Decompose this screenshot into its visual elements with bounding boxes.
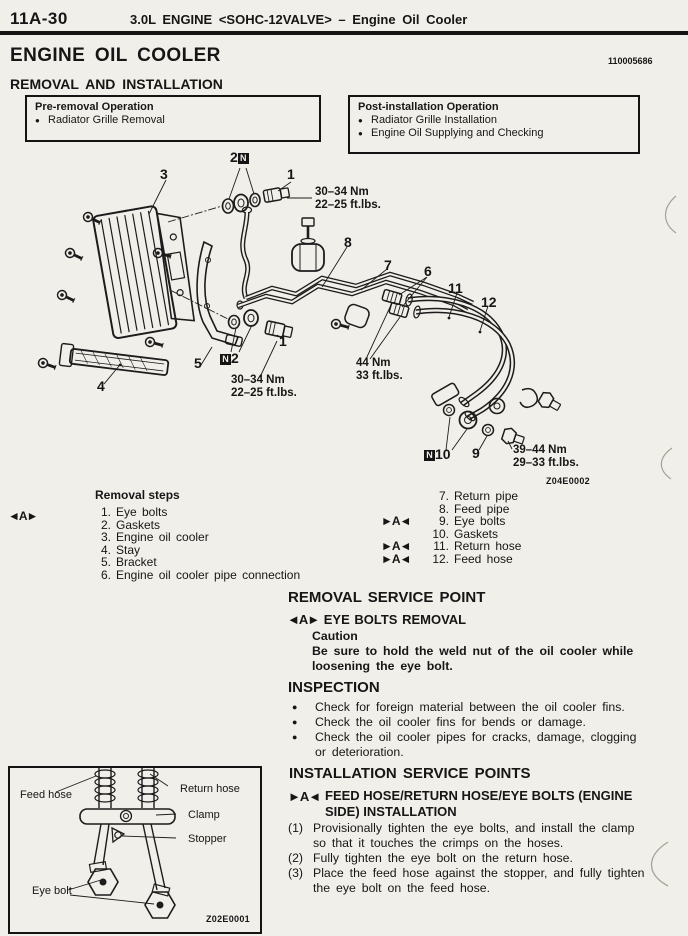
bullet-icon: ● bbox=[358, 114, 371, 127]
callout-6: 6 bbox=[424, 263, 432, 279]
inset-hoses bbox=[95, 768, 158, 808]
removal-service-point-heading: REMOVAL SERVICE POINT bbox=[288, 589, 485, 606]
post-installation-box: Post-installation Operation ● Radiator G… bbox=[348, 95, 640, 154]
hose-clamp-drawing bbox=[343, 303, 371, 329]
pre-removal-title: Pre-removal Operation bbox=[35, 100, 311, 114]
torque-top-ft: 22–25 ft.lbs. bbox=[315, 199, 381, 212]
step-line: the eye bolt on the feed hose. bbox=[313, 881, 645, 896]
torque-hose-nm: 44 Nm bbox=[356, 357, 403, 370]
torque-hose-ft: 33 ft.lbs. bbox=[356, 370, 403, 383]
inset-label-eye-bolt: Eye bolt bbox=[32, 885, 72, 897]
removal-steps-left: 1.Eye bolts 2.Gaskets 3.Engine oil coole… bbox=[97, 506, 300, 582]
inspection-text: Check the oil cooler fins for bends or d… bbox=[315, 715, 586, 730]
torque-mid-nm: 30–34 Nm bbox=[231, 374, 297, 387]
torque-top-nm: 30–34 Nm bbox=[315, 186, 381, 199]
caution-label: Caution bbox=[312, 629, 633, 644]
torque-top: 30–34 Nm 22–25 ft.lbs. bbox=[315, 186, 381, 212]
inspection-list: ● Check for foreign material between the… bbox=[292, 700, 684, 760]
callout-2n: 2N bbox=[230, 149, 249, 165]
pre-removal-box: Pre-removal Operation ● Radiator Grille … bbox=[25, 95, 321, 142]
step-line: Place the feed hose against the stopper,… bbox=[313, 866, 645, 881]
step-line: Fully tighten the eye bolt on the return… bbox=[313, 851, 573, 866]
installation-step: (2) Fully tighten the eye bolt on the re… bbox=[288, 851, 686, 866]
inspection-item: ● Check for foreign material between the… bbox=[292, 700, 684, 715]
callout-4: 4 bbox=[97, 378, 105, 394]
list-item: 3.Engine oil cooler bbox=[97, 531, 300, 544]
post-installation-item: ● Radiator Grille Installation bbox=[358, 114, 630, 127]
feed-return-pipes bbox=[237, 274, 473, 311]
pre-removal-item: ● Radiator Grille Removal bbox=[35, 114, 311, 127]
list-item: 7.Return pipe bbox=[381, 490, 521, 503]
callout-1-top: 1 bbox=[287, 166, 295, 182]
caution-line: Be sure to hold the weld nut of the oil … bbox=[312, 644, 633, 659]
page-title: ENGINE OIL COOLER bbox=[10, 45, 221, 67]
callout-n2: N2 bbox=[220, 350, 239, 366]
callout-8: 8 bbox=[344, 234, 352, 250]
callout-n2-number: 2 bbox=[231, 350, 239, 366]
eye-bolt-top bbox=[263, 186, 290, 202]
inset-label-clamp: Clamp bbox=[188, 809, 220, 821]
callout-12: 12 bbox=[481, 294, 497, 310]
gaskets-mid bbox=[229, 310, 259, 329]
sub-heading-line: SIDE) INSTALLATION bbox=[325, 804, 632, 820]
bullet-icon: ● bbox=[292, 730, 315, 760]
non-reusable-badge: N bbox=[424, 450, 435, 461]
inspection-item: ● Check the oil cooler fins for bends or… bbox=[292, 715, 684, 730]
callout-n10-number: 10 bbox=[435, 446, 451, 462]
post-installation-item-text: Radiator Grille Installation bbox=[371, 114, 497, 127]
inset-clamp bbox=[80, 809, 175, 824]
list-item: ►A◄9.Eye bolts bbox=[381, 515, 521, 528]
service-point-marker-a: ◄A► bbox=[8, 509, 37, 523]
figure-code-inset: Z02E0001 bbox=[206, 914, 250, 924]
installation-step: (1) Provisionally tighten the eye bolts,… bbox=[288, 821, 686, 851]
manual-page: 11A-30 3.0L ENGINE <SOHC-12VALVE> – Engi… bbox=[0, 0, 688, 936]
callout-1-mid: 1 bbox=[279, 333, 287, 349]
bullet-icon: ● bbox=[292, 700, 315, 715]
service-point-marker-b: ►A◄ bbox=[288, 789, 320, 804]
sub-heading-text: EYE BOLTS REMOVAL bbox=[324, 612, 466, 627]
stay-drawing bbox=[59, 343, 169, 378]
post-installation-item-text: Engine Oil Supplying and Checking bbox=[371, 127, 543, 140]
torque-hose: 44 Nm 33 ft.lbs. bbox=[356, 357, 403, 383]
inset-label-stopper: Stopper bbox=[188, 833, 227, 845]
removal-steps-title: Removal steps bbox=[95, 488, 180, 502]
callout-9: 9 bbox=[472, 445, 480, 461]
inspection-item: ● Check the oil cooler pipes for cracks,… bbox=[292, 730, 684, 760]
callout-3: 3 bbox=[160, 166, 168, 182]
pre-removal-item-text: Radiator Grille Removal bbox=[48, 114, 165, 127]
inset-label-return-hose: Return hose bbox=[180, 783, 240, 795]
oil-cooler-drawing bbox=[93, 202, 199, 339]
pipe-clamp-drawing bbox=[292, 218, 324, 271]
non-reusable-badge: N bbox=[220, 354, 231, 365]
torque-eye-ft: 29–33 ft.lbs. bbox=[513, 457, 579, 470]
inset-stopper bbox=[112, 828, 124, 842]
callout-11: 11 bbox=[448, 280, 463, 296]
caution-line: loosening the eye bolt. bbox=[312, 659, 633, 674]
inspection-text: Check for foreign material between the o… bbox=[315, 700, 625, 715]
step-line: Provisionally tighten the eye bolts, and… bbox=[313, 821, 634, 836]
installation-steps: (1) Provisionally tighten the eye bolts,… bbox=[288, 821, 686, 896]
service-point-marker-a: ◄A► bbox=[287, 612, 319, 627]
inspection-text: or deterioration. bbox=[315, 745, 636, 760]
sub-heading-line: FEED HOSE/RETURN HOSE/EYE BOLTS (ENGINE bbox=[325, 788, 632, 804]
torque-mid: 30–34 Nm 22–25 ft.lbs. bbox=[231, 374, 297, 400]
bullet-icon: ● bbox=[35, 114, 48, 127]
callout-7: 7 bbox=[384, 257, 392, 273]
installation-sub-heading: FEED HOSE/RETURN HOSE/EYE BOLTS (ENGINE … bbox=[325, 788, 632, 819]
installation-step: (3) Place the feed hose against the stop… bbox=[288, 866, 686, 896]
torque-eye-nm: 39–44 Nm bbox=[513, 444, 579, 457]
installation-service-points-heading: INSTALLATION SERVICE POINTS bbox=[289, 765, 531, 782]
inset-label-feed-hose: Feed hose bbox=[20, 789, 72, 801]
inspection-text: Check the oil cooler pipes for cracks, d… bbox=[315, 730, 636, 745]
post-installation-item: ● Engine Oil Supplying and Checking bbox=[358, 127, 630, 140]
torque-eye: 39–44 Nm 29–33 ft.lbs. bbox=[513, 444, 579, 470]
bullet-icon: ● bbox=[292, 715, 315, 730]
page-number: 11A-30 bbox=[10, 9, 68, 29]
header-rule bbox=[0, 31, 688, 35]
torque-mid-ft: 22–25 ft.lbs. bbox=[231, 387, 297, 400]
step-line: so that it touches the crimps on the hos… bbox=[313, 836, 634, 851]
section-heading: REMOVAL AND INSTALLATION bbox=[10, 76, 223, 92]
callout-2n-number: 2 bbox=[230, 149, 238, 165]
doc-number: 110005686 bbox=[608, 56, 653, 66]
non-reusable-badge: N bbox=[238, 153, 249, 164]
post-installation-title: Post-installation Operation bbox=[358, 100, 630, 114]
inspection-heading: INSPECTION bbox=[288, 679, 380, 696]
figure-code-main: Z04E0002 bbox=[546, 476, 590, 486]
list-item: 1.Eye bolts bbox=[97, 506, 300, 519]
list-item: ►A◄12.Feed hose bbox=[381, 553, 521, 566]
caution-block: Caution Be sure to hold the weld nut of … bbox=[312, 629, 633, 674]
removal-steps-right: 7.Return pipe 8.Feed pipe ►A◄9.Eye bolts… bbox=[381, 490, 521, 566]
callout-5: 5 bbox=[194, 355, 202, 371]
bullet-icon: ● bbox=[358, 127, 371, 140]
gaskets-top bbox=[223, 194, 261, 214]
callout-n10: N10 bbox=[424, 446, 451, 462]
pipe-vertical bbox=[243, 207, 252, 298]
banjo-cluster bbox=[431, 382, 563, 448]
list-item: 6.Engine oil cooler pipe connection bbox=[97, 569, 300, 582]
running-header: 3.0L ENGINE <SOHC-12VALVE> – Engine Oil … bbox=[130, 12, 467, 27]
removal-service-point-sub: ◄A► EYE BOLTS REMOVAL bbox=[287, 612, 466, 627]
